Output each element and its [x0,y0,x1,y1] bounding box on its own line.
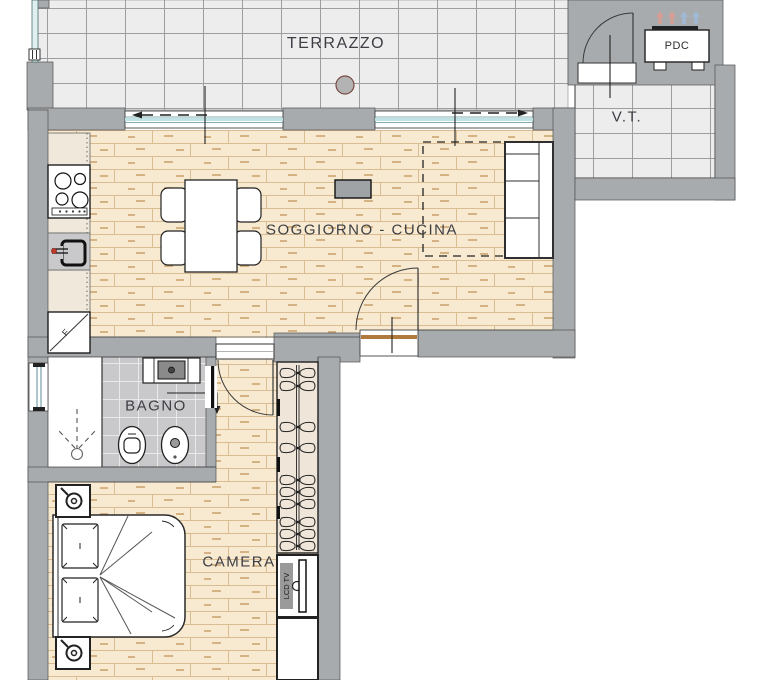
chair [161,231,188,265]
chair [234,231,261,265]
wall-bagno-bottom [28,467,216,482]
floor-plan-canvas: F [0,0,758,680]
chair [161,188,188,222]
faucet-dot [51,248,56,253]
terrazzo-label: TERRAZZO [287,35,385,53]
floor-drain-icon [336,76,354,94]
counter-segment [48,270,90,312]
counter-segment [48,218,90,233]
wall-camera-right [318,357,340,680]
pillar-box [335,180,371,198]
vt-label: V.T. [612,109,642,126]
wall-window-pillar [283,108,375,130]
wall-soggiorno-right [553,108,575,358]
wardrobe [277,362,318,553]
table [185,180,237,272]
bed [53,515,185,637]
railing-post [29,49,40,60]
bagno-window [29,363,48,411]
camera-label: CAMERA [202,554,275,571]
bagno-door [205,366,217,408]
tv-screen-icon [299,560,306,612]
cooktop-icon [48,165,90,218]
speaker-top-icon [56,485,90,517]
entrance-threshold-wood [361,335,417,339]
chair [234,188,261,222]
wall-terrace-left [27,62,53,110]
cabinet [277,618,318,680]
bidet-icon [162,427,189,464]
entrance-threshold [360,330,418,356]
shower-drain-icon [72,449,83,460]
sink-icon [48,233,90,270]
terrace-floor [38,0,568,110]
vt-floor [575,83,715,178]
washbasin-icon [143,358,200,383]
counter-segment [48,133,90,165]
bagno-label: BAGNO [125,398,187,415]
fridge-icon: F [48,312,90,353]
tv-unit: LCD TV [277,555,318,617]
speaker-bottom-icon [56,637,90,669]
wall-vt-bottom [575,178,735,200]
sofa [505,142,553,258]
lcd-tv-label: LCD TV [282,573,291,600]
wall-entrance-right [418,330,575,357]
kitchen: F [48,133,90,353]
floor-plan: F [0,0,758,680]
bagno-door-leaf [211,366,214,408]
soggiorno-label: SOGGIORNO - CUCINA [266,222,458,239]
pdc-label: PDC [665,40,690,52]
vt-door-frame [578,63,636,83]
wc-icon [119,427,146,464]
